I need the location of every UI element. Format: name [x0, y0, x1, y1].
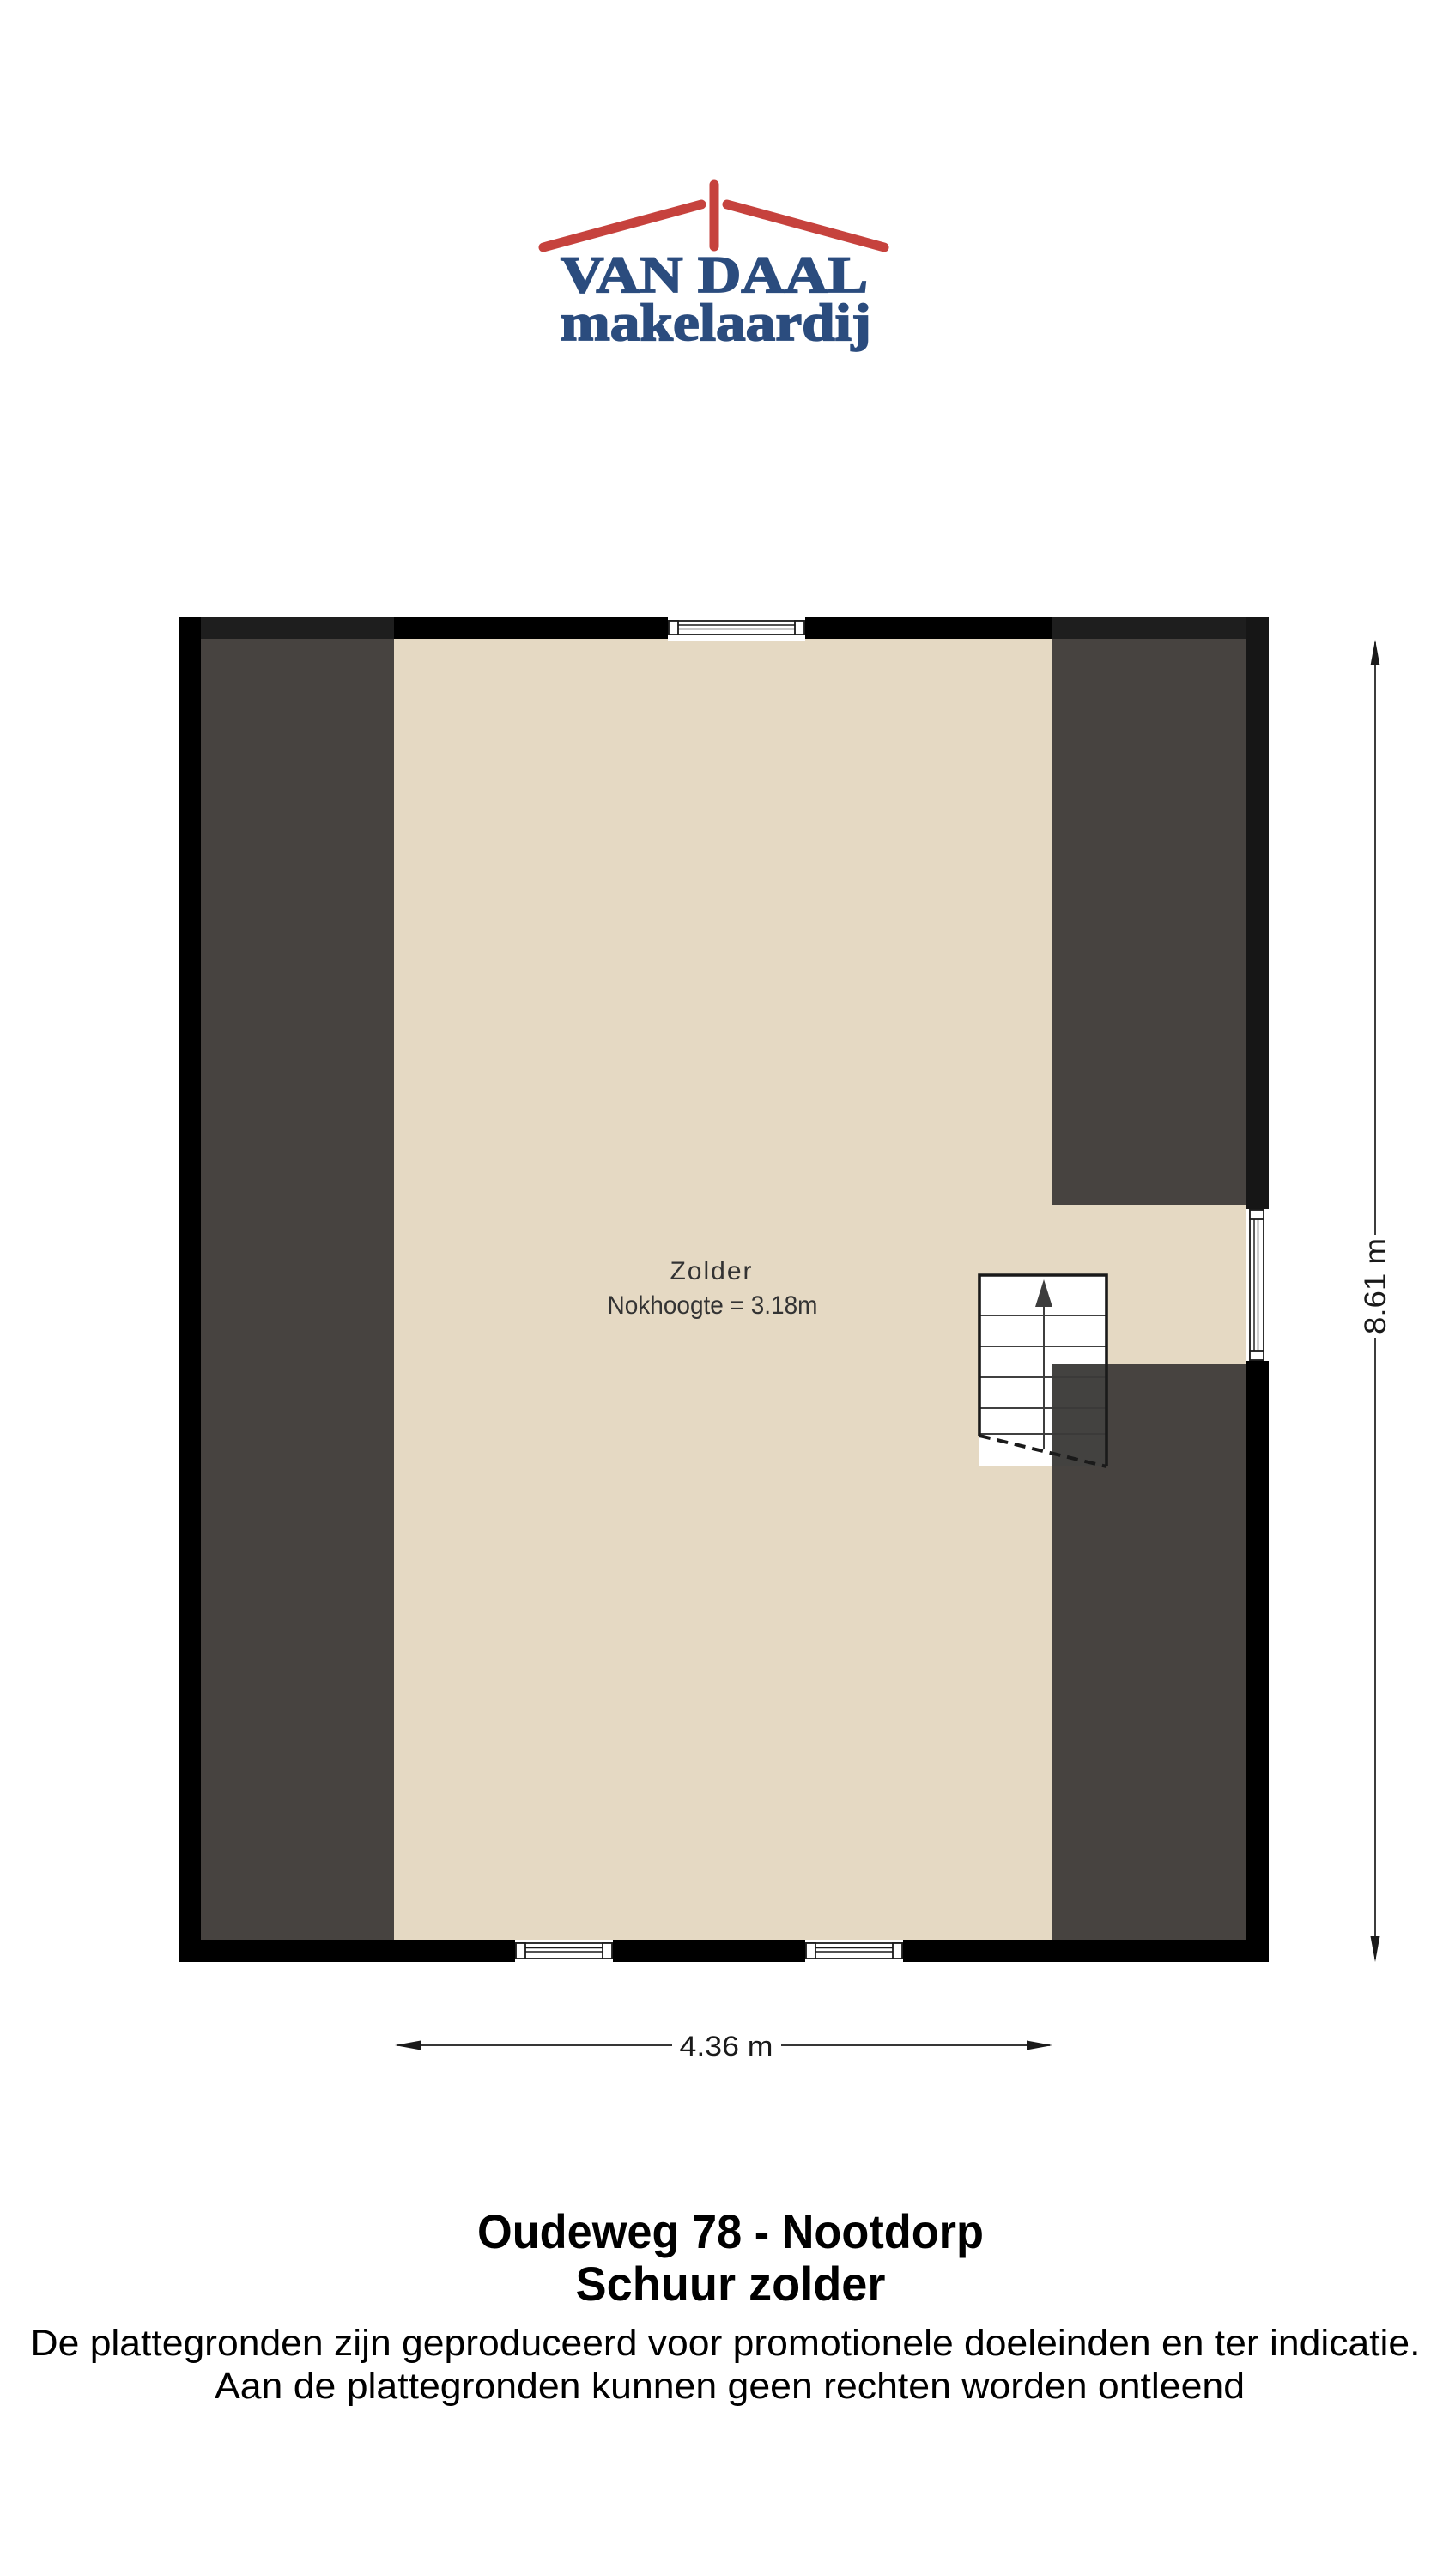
svg-text:makelaardij: makelaardij	[561, 295, 871, 352]
svg-text:Oudeweg 78 - Nootdorp: Oudeweg 78 - Nootdorp	[477, 2204, 984, 2258]
svg-text:Zolder: Zolder	[670, 1257, 753, 1285]
svg-text:De plattegronden zijn geproduc: De plattegronden zijn geproduceerd voor …	[31, 2323, 1421, 2364]
svg-text:4.36 m: 4.36 m	[680, 2031, 773, 2062]
svg-text:8.61 m: 8.61 m	[1359, 1238, 1392, 1334]
svg-text:Nokhoogte = 3.18m: Nokhoogte = 3.18m	[608, 1291, 818, 1320]
svg-text:Aan de plattegronden kunnen ge: Aan de plattegronden kunnen geen rechten…	[215, 2366, 1245, 2407]
svg-text:Schuur zolder: Schuur zolder	[576, 2257, 886, 2311]
